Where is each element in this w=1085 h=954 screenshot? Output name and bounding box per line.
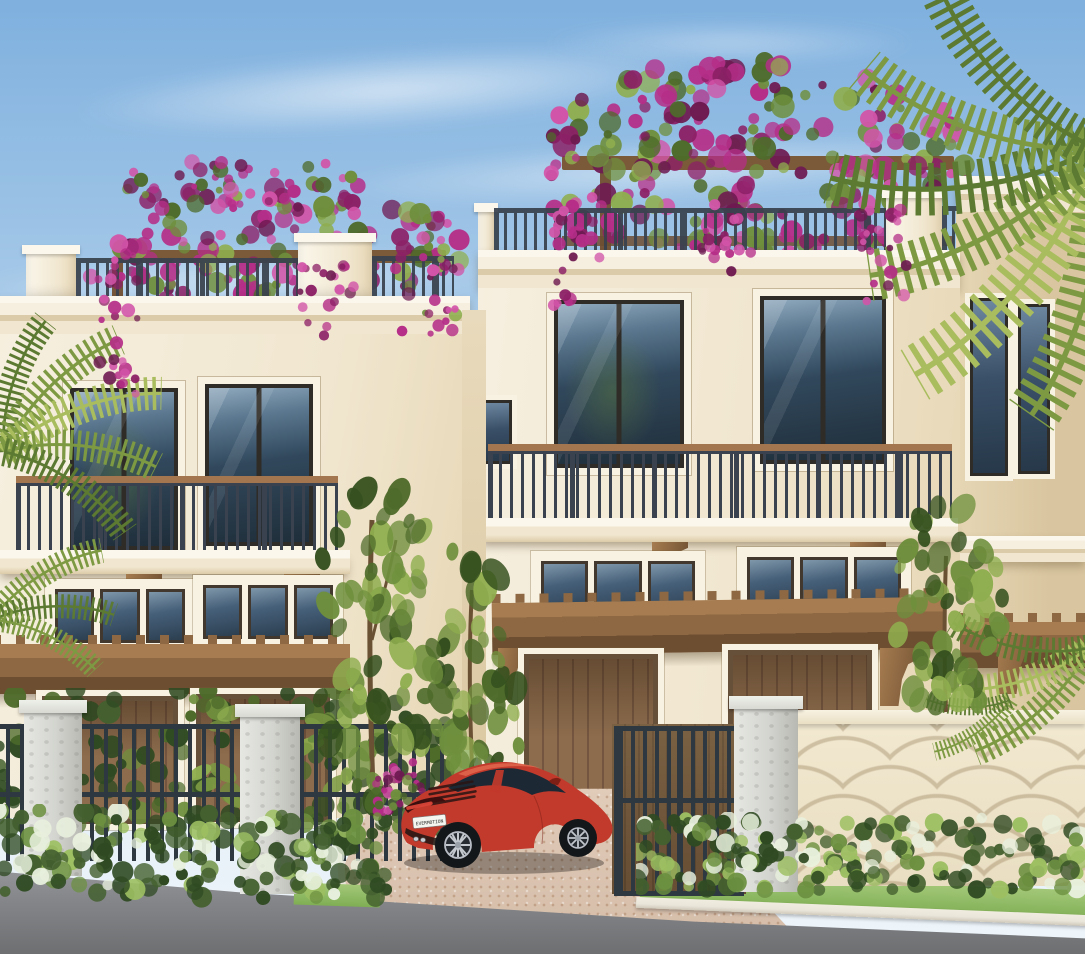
rear-wheel bbox=[435, 822, 481, 868]
slender-tree bbox=[885, 489, 1014, 717]
hedge-foliage bbox=[0, 804, 392, 908]
hedge-left bbox=[0, 804, 392, 908]
bougainvillea-drape bbox=[697, 198, 756, 277]
rendering-scene: EVERMOTION bbox=[0, 0, 1085, 954]
bougainvillea-drape bbox=[94, 248, 142, 397]
palm-tree-left bbox=[0, 320, 166, 691]
bougainvillea-drape bbox=[297, 260, 359, 340]
hedge-right bbox=[636, 812, 1085, 900]
red-sports-car: EVERMOTION bbox=[392, 756, 626, 878]
hedge-foliage bbox=[636, 812, 1085, 900]
bougainvillea-drape bbox=[390, 252, 464, 337]
front-wheel bbox=[559, 819, 597, 857]
bougainvillea-drape bbox=[548, 197, 605, 311]
